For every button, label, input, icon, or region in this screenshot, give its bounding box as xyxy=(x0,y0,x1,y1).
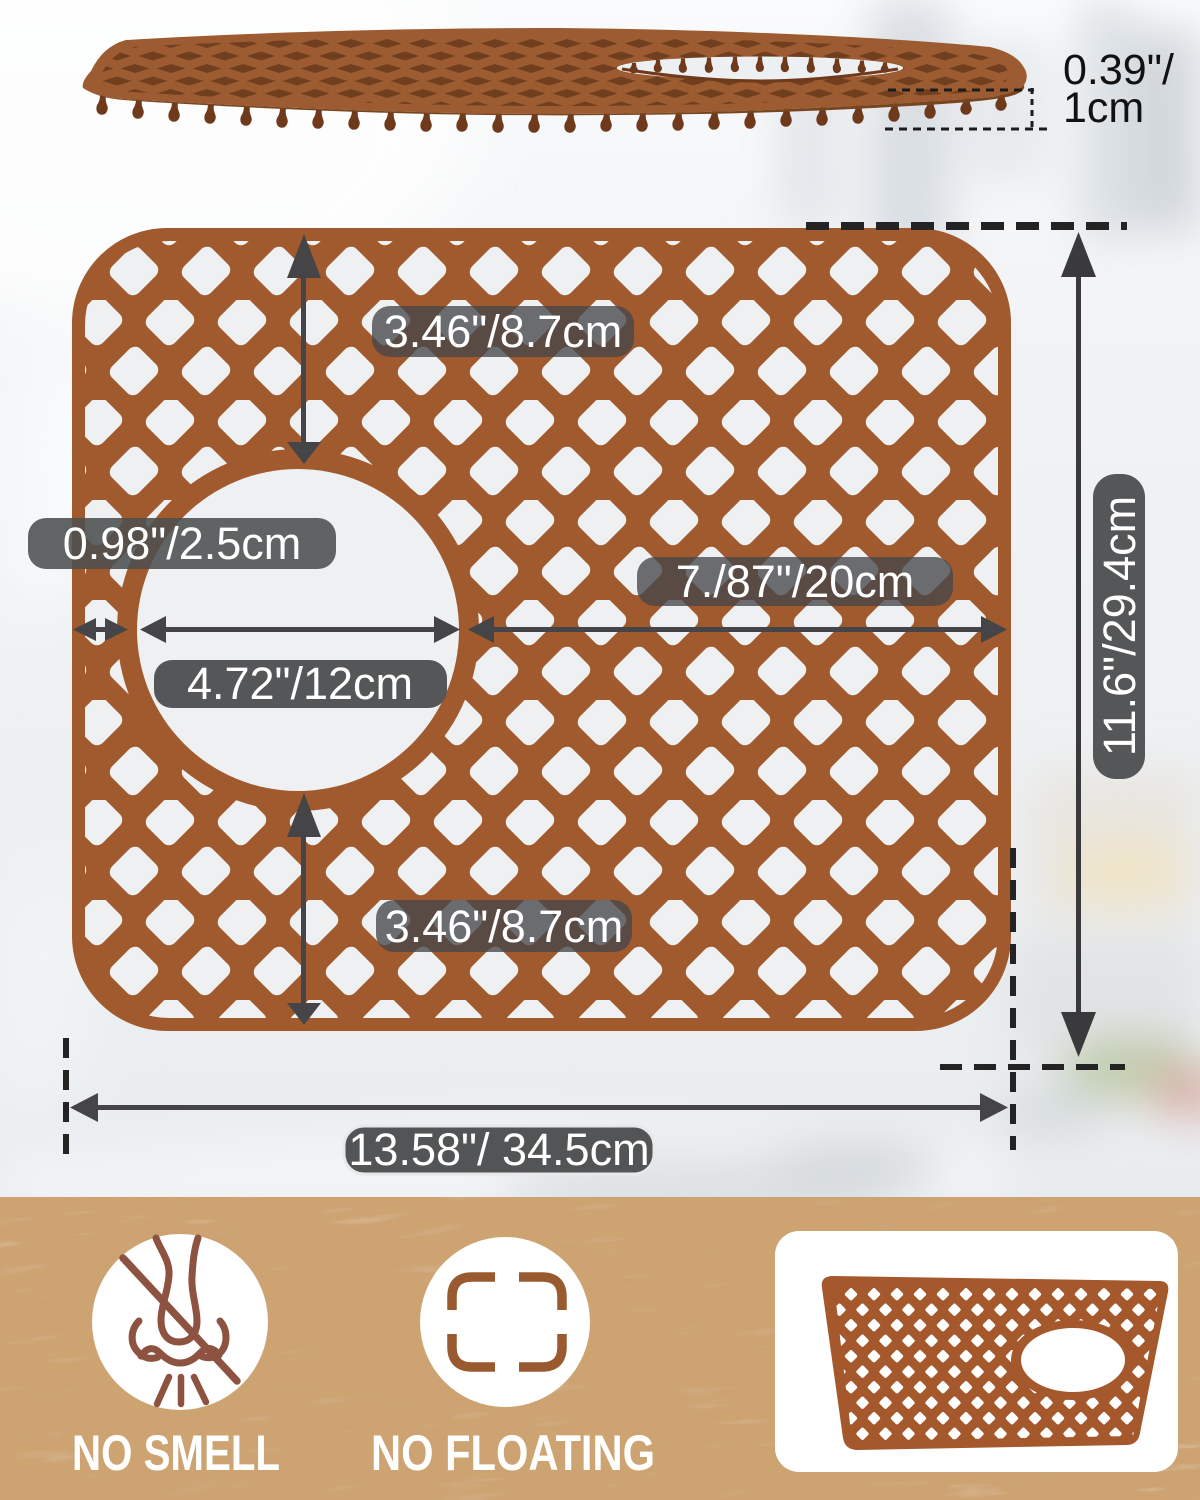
svg-text:11.6"/29.4cm: 11.6"/29.4cm xyxy=(1094,496,1145,756)
svg-text:NO SMELL: NO SMELL xyxy=(72,1425,280,1481)
svg-text:NO FLOATING: NO FLOATING xyxy=(371,1425,655,1481)
svg-text:13.58"/ 34.5cm: 13.58"/ 34.5cm xyxy=(348,1124,649,1175)
svg-text:7./87"/20cm: 7./87"/20cm xyxy=(676,556,915,607)
svg-text:1cm: 1cm xyxy=(1063,84,1144,132)
svg-text:4.72"/12cm: 4.72"/12cm xyxy=(187,658,413,709)
svg-text:0.98"/2.5cm: 0.98"/2.5cm xyxy=(63,518,302,569)
svg-text:3.46"/8.7cm: 3.46"/8.7cm xyxy=(385,901,624,952)
svg-text:3.46"/8.7cm: 3.46"/8.7cm xyxy=(384,306,623,357)
